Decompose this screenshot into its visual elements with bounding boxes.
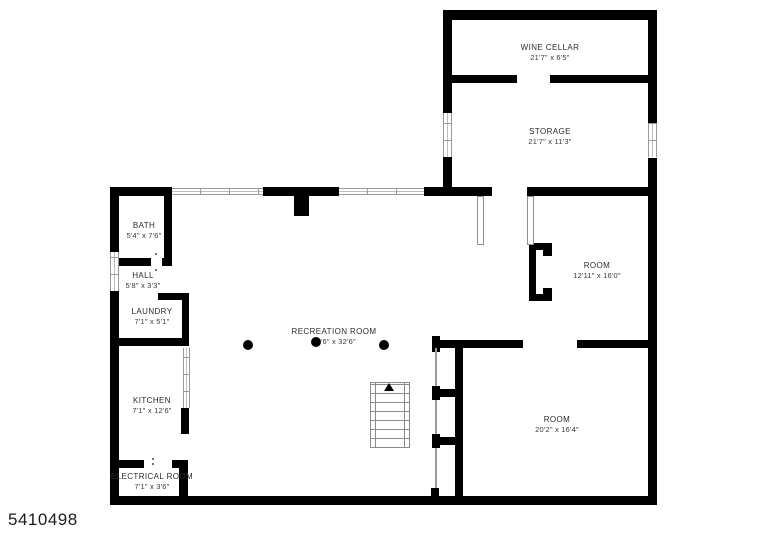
room-dims: 20'2" x 16'4" (535, 425, 579, 435)
room-label-electrical-room: ELECTRICAL ROOM 7'1" x 3'6" (111, 472, 193, 492)
wall-segment (424, 187, 492, 196)
room-label-kitchen: KITCHEN 7'1" x 12'6" (132, 396, 171, 416)
wall-segment (543, 288, 552, 301)
window (110, 252, 119, 291)
wall-segment (431, 488, 439, 497)
room-name: HALL (126, 271, 161, 281)
room-dims: 26'6" x 32'6" (292, 337, 377, 347)
wall-segment (119, 258, 151, 266)
wall-segment (181, 408, 189, 434)
wall-segment (110, 496, 657, 505)
door-mark (152, 458, 154, 460)
wall-segment (529, 243, 536, 301)
room-name: ROOM (535, 415, 579, 425)
window (183, 348, 190, 408)
door-mark (152, 463, 154, 465)
wall-segment (162, 258, 172, 266)
room-label-recreation-room: RECREATION ROOM 26'6" x 32'6" (292, 327, 377, 347)
room-label-room-right: ROOM 12'11" x 16'0" (573, 261, 621, 281)
open-door (477, 196, 484, 245)
wall-segment (443, 75, 517, 83)
up-arrow-icon (384, 383, 394, 391)
support-column (379, 340, 389, 350)
room-name: KITCHEN (132, 396, 171, 406)
room-name: LAUNDRY (132, 307, 173, 317)
plan-id: 5410498 (8, 510, 78, 530)
room-dims: 12'11" x 16'0" (573, 271, 621, 281)
wall-segment (455, 348, 463, 496)
room-label-laundry: LAUNDRY 7'1" x 5'1" (132, 307, 173, 327)
wall-segment (443, 10, 657, 20)
room-name: ROOM (573, 261, 621, 271)
room-dims: 21'7" x 11'3" (528, 137, 571, 147)
wall-segment (648, 10, 657, 123)
wall-segment (648, 158, 657, 505)
wall-segment (110, 187, 119, 252)
support-column (243, 340, 253, 350)
window (172, 188, 263, 195)
window (648, 123, 657, 157)
room-name: WINE CELLAR (521, 43, 580, 53)
support-column (311, 337, 321, 347)
room-dims: 7'1" x 5'1" (132, 317, 173, 327)
room-name: BATH (127, 221, 162, 231)
floor-plan: WINE CELLAR 21'7" x 6'5" STORAGE 21'7" x… (0, 0, 768, 540)
window (339, 188, 424, 195)
room-label-storage: STORAGE 21'7" x 11'3" (528, 127, 571, 147)
wall-segment (577, 340, 657, 348)
wall-segment (164, 187, 172, 266)
room-dims: 5'8" x 3'3" (126, 281, 161, 291)
room-label-hall: HALL 5'8" x 3'3" (126, 271, 161, 291)
room-label-bath: BATH 5'4" x 7'6" (127, 221, 162, 241)
room-dims: 7'1" x 3'6" (111, 482, 193, 492)
wall-segment (550, 75, 657, 83)
wall-segment (543, 243, 552, 256)
chimney-block (294, 196, 309, 216)
stairs (370, 382, 410, 448)
wall-segment (432, 437, 463, 445)
room-label-wine-cellar: WINE CELLAR 21'7" x 6'5" (521, 43, 580, 63)
room-dims: 5'4" x 7'6" (127, 231, 162, 241)
wall-segment (443, 10, 452, 113)
room-name: ELECTRICAL ROOM (111, 472, 193, 482)
wall-segment (432, 340, 523, 348)
window (443, 113, 452, 157)
opening-line (435, 348, 437, 496)
room-name: STORAGE (528, 127, 571, 137)
wall-segment (263, 187, 339, 196)
room-dims: 21'7" x 6'5" (521, 53, 580, 63)
room-label-room-lower: ROOM 20'2" x 16'4" (535, 415, 579, 435)
wall-segment (110, 187, 172, 196)
wall-segment (527, 187, 657, 196)
room-dims: 7'1" x 12'6" (132, 406, 171, 416)
wall-segment (110, 338, 189, 346)
wall-segment (432, 389, 463, 397)
open-door (527, 196, 534, 245)
door-mark (155, 253, 157, 255)
room-name: RECREATION ROOM (292, 327, 377, 337)
wall-segment (119, 460, 144, 468)
